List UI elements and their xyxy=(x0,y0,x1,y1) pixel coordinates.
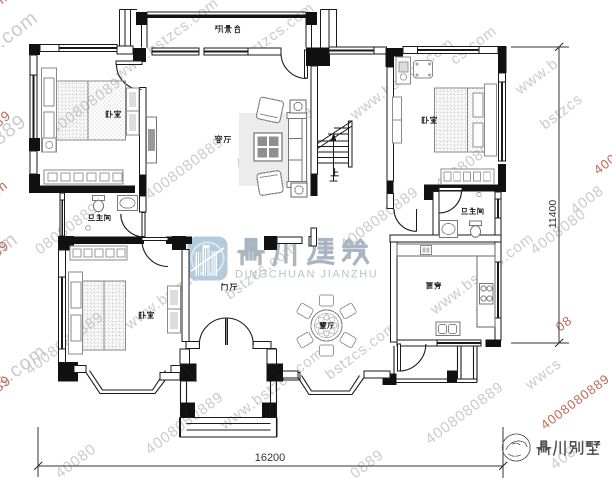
svg-text:0889: 0889 xyxy=(347,446,387,479)
svg-text:400: 400 xyxy=(591,151,612,178)
svg-text:bstzcs.com: bstzcs.com xyxy=(0,176,11,237)
svg-text:16200: 16200 xyxy=(255,452,286,464)
svg-text:DINGCHUAN JIANZHU: DINGCHUAN JIANZHU xyxy=(235,269,378,281)
svg-text:zcs.com: zcs.com xyxy=(0,228,22,294)
svg-text:www.b: www.b xyxy=(511,55,561,99)
svg-text:408: 408 xyxy=(547,443,580,473)
svg-text:40080: 40080 xyxy=(52,441,100,479)
svg-text:www.bstzcs.com: www.bstzcs.com xyxy=(111,0,222,84)
svg-text:bstzcs: bstzcs xyxy=(537,90,586,133)
svg-text:08: 08 xyxy=(553,313,575,335)
svg-text:4008080889: 4008080889 xyxy=(422,378,507,448)
svg-text:cs.com: cs.com xyxy=(447,22,500,68)
svg-text:wwcs: wwcs xyxy=(521,355,565,394)
svg-text:11400: 11400 xyxy=(547,200,559,229)
